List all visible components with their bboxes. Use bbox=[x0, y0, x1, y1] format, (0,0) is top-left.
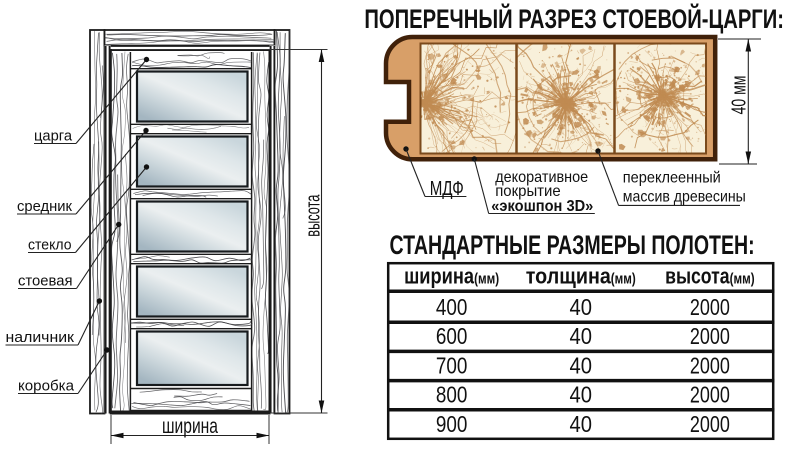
svg-text:2000: 2000 bbox=[690, 323, 730, 349]
svg-text:СТАНДАРТНЫЕ РАЗМЕРЫ ПОЛОТЕН:: СТАНДАРТНЫЕ РАЗМЕРЫ ПОЛОТЕН: bbox=[390, 230, 755, 260]
svg-text:высота: высота bbox=[665, 264, 730, 289]
svg-text:массив древесины: массив древесины bbox=[623, 189, 746, 206]
svg-text:ПОПЕРЕЧНЫЙ РАЗРЕЗ СТОЕВОЙ-ЦАРГ: ПОПЕРЕЧНЫЙ РАЗРЕЗ СТОЕВОЙ-ЦАРГИ: bbox=[364, 3, 784, 34]
svg-text:2000: 2000 bbox=[690, 411, 730, 437]
svg-text:«экошпон 3D»: «экошпон 3D» bbox=[491, 198, 593, 215]
svg-text:800: 800 bbox=[436, 382, 468, 408]
svg-text:высота: высота bbox=[302, 194, 324, 237]
svg-text:(мм): (мм) bbox=[611, 271, 636, 288]
svg-text:400: 400 bbox=[436, 294, 468, 320]
svg-text:40: 40 bbox=[570, 382, 593, 408]
svg-text:(мм): (мм) bbox=[474, 271, 499, 288]
svg-text:стекло: стекло bbox=[28, 237, 72, 254]
svg-text:40: 40 bbox=[570, 352, 593, 378]
svg-text:40 мм: 40 мм bbox=[729, 76, 751, 115]
svg-text:царга: царга bbox=[34, 128, 73, 145]
svg-text:40: 40 bbox=[570, 323, 593, 349]
svg-text:600: 600 bbox=[436, 323, 468, 349]
svg-text:40: 40 bbox=[570, 294, 593, 320]
svg-text:ширина: ширина bbox=[404, 264, 475, 289]
svg-text:40: 40 bbox=[570, 411, 593, 437]
svg-text:900: 900 bbox=[436, 411, 468, 437]
svg-text:(мм): (мм) bbox=[730, 271, 755, 288]
svg-text:переклеенный: переклеенный bbox=[623, 170, 721, 187]
svg-text:700: 700 bbox=[436, 352, 468, 378]
svg-text:МДФ: МДФ bbox=[430, 178, 464, 200]
svg-text:ширина: ширина bbox=[162, 415, 218, 438]
svg-text:средник: средник bbox=[17, 198, 72, 215]
svg-text:коробка: коробка bbox=[18, 378, 75, 395]
svg-text:2000: 2000 bbox=[690, 294, 730, 320]
svg-text:наличник: наличник bbox=[6, 329, 75, 346]
svg-text:стоевая: стоевая bbox=[18, 273, 73, 290]
svg-text:2000: 2000 bbox=[690, 352, 730, 378]
svg-text:толщина: толщина bbox=[526, 264, 612, 289]
svg-text:2000: 2000 bbox=[690, 382, 730, 408]
